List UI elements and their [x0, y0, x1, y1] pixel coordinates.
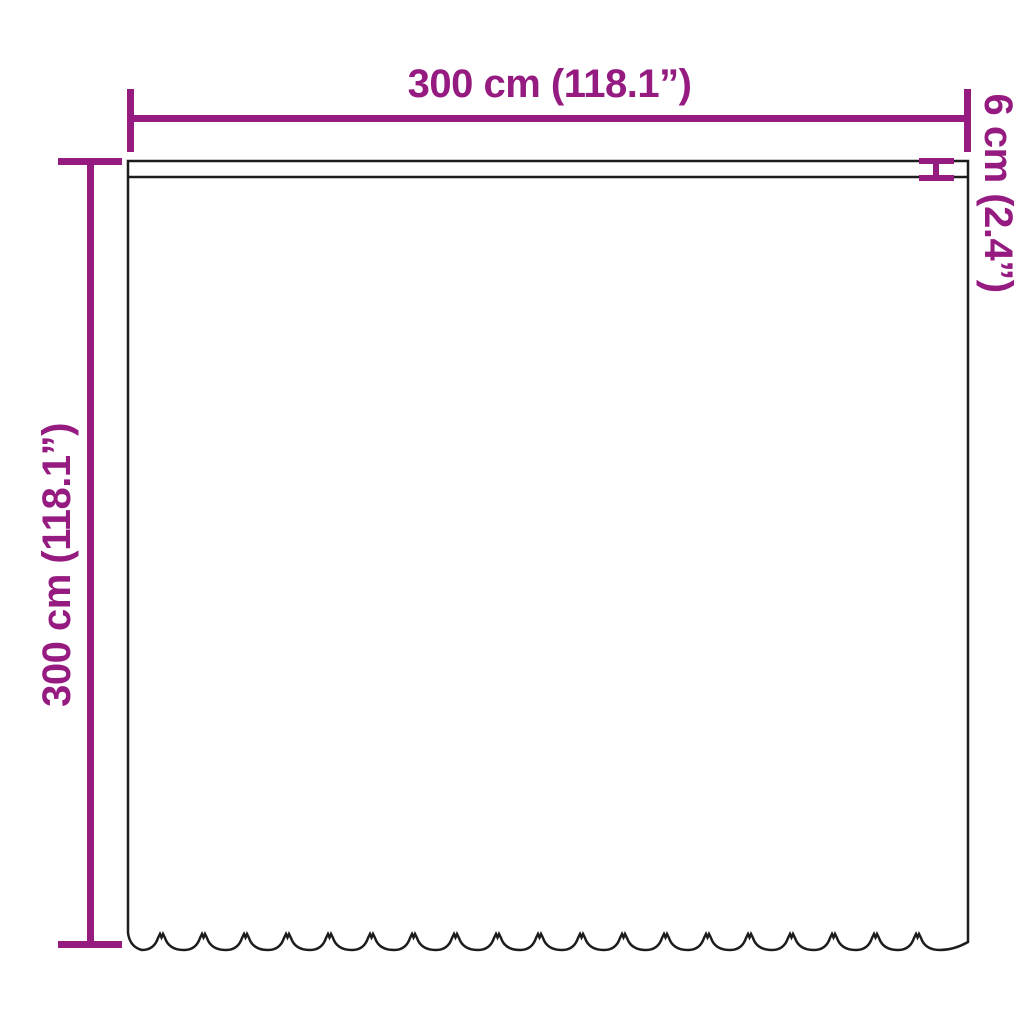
hem-marker-tick-bottom: [919, 175, 954, 181]
curtain-outline-svg: [0, 0, 1024, 1024]
height-dimension-line: [87, 161, 94, 948]
hem-dimension-label: 6 cm (2.4”): [978, 93, 1018, 292]
height-dimension-tick-top: [58, 158, 122, 165]
curtain-dimension-diagram: 300 cm (118.1”) 300 cm (118.1”) 6 cm (2.…: [0, 0, 1024, 1024]
height-dimension-tick-bottom: [58, 941, 122, 948]
hem-marker-tick-top: [919, 158, 954, 164]
height-dimension-label: 300 cm (118.1”): [37, 423, 77, 707]
curtain-shape: [128, 161, 968, 950]
width-dimension-line: [128, 115, 971, 122]
width-dimension-label: 300 cm (118.1”): [128, 64, 971, 104]
